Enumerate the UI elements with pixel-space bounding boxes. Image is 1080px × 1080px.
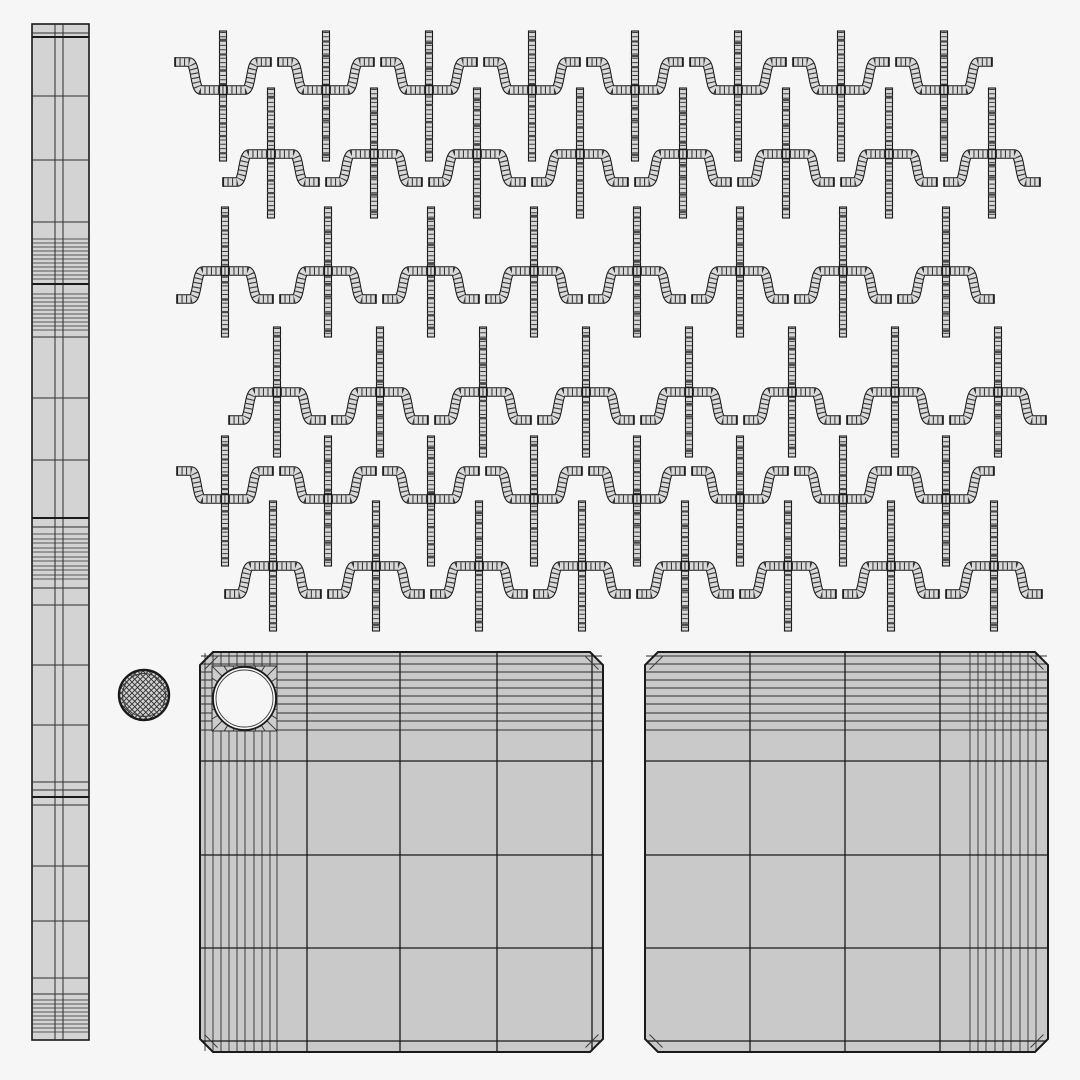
rod-wireframe [32,24,89,1040]
panel-plain [645,652,1048,1052]
wireframe-canvas [0,0,1080,1080]
panel-grommet [191,645,603,1052]
wireframe-sheet [0,0,1080,1080]
grommet-hole [213,667,276,730]
sphere-wireframe [119,670,169,720]
